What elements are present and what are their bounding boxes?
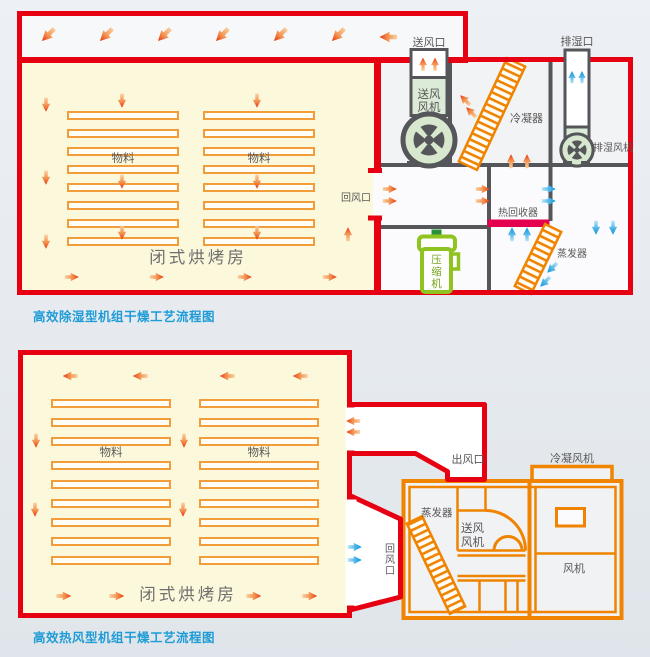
air-outlet-label: 出风口	[452, 452, 485, 466]
return-inlet-label-char: 风	[385, 554, 395, 566]
supply-duct-area	[22, 16, 466, 60]
page: 送风口 排湿口 送风 风机 冷凝器 排湿风机 回风口 热回收器 压 缩 机 蒸发…	[0, 0, 650, 657]
diagram-hot-air-unit: 物料 物料 闭式烘烤房 出风口 冷凝风机 回 风 口 蒸发器 送风 风机 风机	[21, 353, 622, 619]
material-label: 物料	[248, 151, 271, 165]
baking-room-label: 闭式烘烤房	[149, 248, 247, 267]
diagrams-canvas: 送风口 排湿口 送风 风机 冷凝器 排湿风机 回风口 热回收器 压 缩 机 蒸发…	[0, 0, 650, 657]
supply-outlet-box	[411, 50, 447, 78]
diagram1-caption: 高效除湿型机组干燥工艺流程图	[33, 306, 433, 325]
exhaust-fan-label: 排湿风机	[593, 141, 633, 154]
heat-recovery-label: 热回收器	[498, 206, 538, 219]
hot-air-machine	[404, 467, 622, 619]
tray-stack	[200, 400, 318, 564]
compressor-label-char: 机	[431, 277, 442, 290]
compressor-label-char: 压	[431, 254, 442, 266]
material-label: 物料	[100, 445, 123, 459]
fan-terminal-box	[557, 509, 585, 527]
return-inlet-label: 回风口	[341, 192, 371, 204]
condensing-fan-label: 冷凝风机	[550, 451, 594, 465]
return-air-opening	[373, 173, 383, 217]
supply-fan-label-1: 送风	[461, 521, 484, 535]
baking-room-label-2: 闭式烘烤房	[139, 585, 237, 604]
fan-label: 风机	[563, 561, 585, 575]
tray-stack	[52, 400, 170, 564]
diagram-dehumidifier-unit: 送风口 排湿口 送风 风机 冷凝器 排湿风机 回风口 热回收器 压 缩 机 蒸发…	[20, 14, 634, 294]
material-label: 物料	[112, 151, 135, 165]
exhaust-chimney	[565, 50, 589, 127]
condenser-label: 冷凝器	[510, 111, 543, 125]
outlet-duct	[352, 405, 485, 480]
supply-fan-label-1: 送风	[418, 87, 441, 101]
supply-outlet-label: 送风口	[413, 35, 446, 49]
supply-fan-label-2: 风机	[461, 535, 484, 549]
supply-fan-label-2: 风机	[418, 100, 441, 114]
material-label: 物料	[248, 445, 271, 459]
return-inlet-label-char: 口	[385, 566, 395, 577]
supply-fan-icon	[403, 114, 455, 166]
diagram2-caption: 高效热风型机组干燥工艺流程图	[33, 627, 433, 646]
evaporator-label-2: 蒸发器	[421, 506, 453, 519]
compressor-label-char: 缩	[431, 265, 442, 278]
return-inlet-label-char: 回	[385, 543, 395, 555]
exhaust-outlet-label: 排湿口	[561, 34, 594, 48]
heat-recovery-bar	[488, 220, 550, 228]
evaporator-label: 蒸发器	[557, 247, 587, 260]
